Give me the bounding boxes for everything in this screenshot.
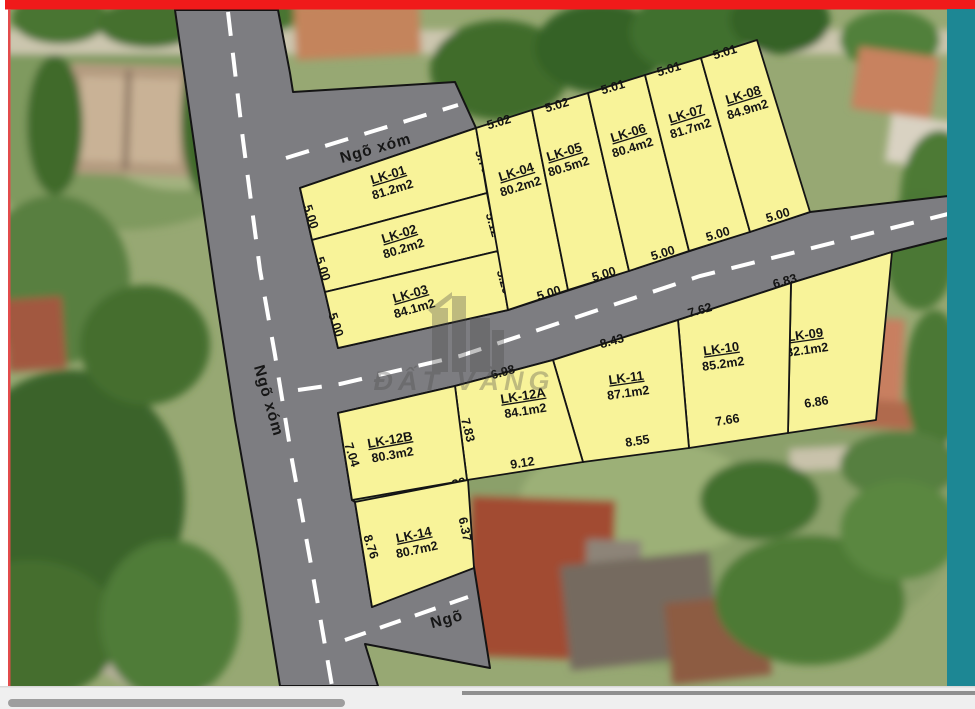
right-teal-stripe — [947, 9, 975, 686]
horizontal-scrollbar-thumb[interactable] — [8, 699, 345, 707]
watermark-text: ĐẤT VÀNG — [374, 365, 555, 396]
bottom-band-top-edge — [0, 686, 975, 688]
map-canvas: Ngõ xóm Ngõ xóm Ngõ LK-01 81.2m2 5.00 5.… — [0, 0, 975, 709]
top-red-bar — [5, 0, 975, 10]
left-red-line — [8, 9, 11, 686]
bottom-divider-line — [462, 691, 975, 695]
land-plot-map-screenshot: Ngõ xóm Ngõ xóm Ngõ LK-01 81.2m2 5.00 5.… — [0, 0, 975, 709]
house-top-left — [68, 63, 192, 177]
plot-LK-10: LK-10 85.2m2 7.62 7.66 — [678, 283, 791, 448]
